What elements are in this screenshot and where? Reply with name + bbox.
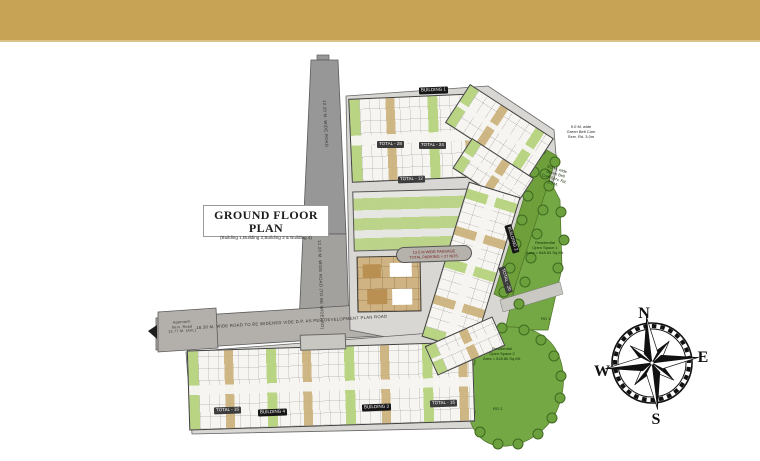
building-1-label-chip: BUILDING 1 <box>419 86 448 94</box>
open-space-line: Area = 518.80 Sq.Mt. <box>478 356 526 361</box>
approach-road-label: Approach Serv. Road 13.77 M. (AVL) <box>162 319 203 335</box>
compass-label-south: S <box>652 411 661 428</box>
plan-title: GROUND FLOOR PLAN <box>204 209 328 235</box>
compass-rose: N E W S <box>594 305 708 428</box>
compass-label-north: N <box>638 305 650 322</box>
open-space-2-label: Residential Open Space 2 Area = 518.80 S… <box>478 346 526 361</box>
road-direction-arrow-icon <box>148 325 157 339</box>
total-chip: TOTAL - 24 <box>419 142 446 149</box>
belt-note-line: Serv. Rd. 3.0m <box>560 134 602 139</box>
plan-subtitle: (Building 1,Building 2,Building 3 & Buil… <box>204 235 328 241</box>
total-chip: TOTAL - 16 <box>430 400 457 407</box>
total-chip: TOTAL - 12 <box>398 176 425 183</box>
green-belt-note: 9.0 M. wide Green Belt Cum Serv. Rd. 3.0… <box>560 124 602 139</box>
total-chip: TOTAL - 16 <box>214 407 241 414</box>
rg1-label: RG 1 <box>541 316 550 321</box>
compass-label-west: W <box>594 363 610 380</box>
building-4-label-chip: BUILDING 4 <box>258 408 287 416</box>
plan-title-block: GROUND FLOOR PLAN (Building 1,Building 2… <box>203 205 329 237</box>
road-end-tick <box>317 55 329 60</box>
parking-note-band: 13.5 M WIDE PASSAGE TOTAL PARKING = 27 N… <box>396 245 473 264</box>
building-3-label-chip: BUILDING 3 <box>362 403 391 411</box>
open-space-line: Area = 648.63 Sq.Mt. <box>522 250 568 255</box>
total-chip: TOTAL - 28 <box>377 141 404 148</box>
rg2-label: RG 2 <box>493 406 502 411</box>
open-space-1-label: Residential Open Space 1 Area = 648.63 S… <box>522 240 568 255</box>
stair-core-cluster <box>357 255 422 312</box>
parking-note-line2: TOTAL PARKING = 27 NOS. <box>397 253 471 261</box>
page: N E W S BUILDING 1 TOTAL - 28 TOTAL - 24… <box>0 0 760 461</box>
annex-block <box>300 333 347 351</box>
compass-label-east: E <box>698 349 709 366</box>
